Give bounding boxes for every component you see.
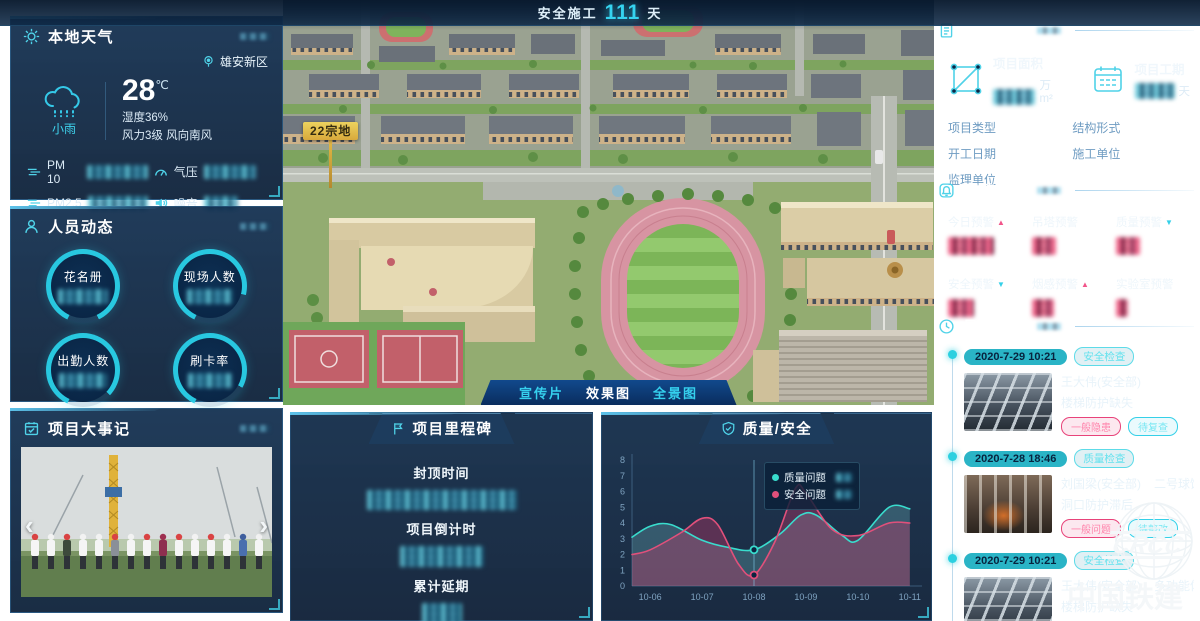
obscured-value — [993, 89, 1035, 105]
inspector-name: 刘国梁(安全部) — [1061, 475, 1141, 492]
tooltip-row-quality: 质量问题 — [772, 470, 852, 485]
parcel-marker[interactable]: 22宗地 — [303, 122, 358, 188]
obscured-value — [836, 473, 852, 482]
activity-photo-thumbnail[interactable] — [964, 373, 1052, 431]
weather-metrics: PM 10 气压 PM2.5 噪音 — [11, 150, 282, 212]
series-dot-safety — [772, 491, 779, 498]
header-days-count: 111 — [605, 2, 641, 23]
field-label: 开工日期 — [948, 145, 996, 162]
series-dot-quality — [772, 474, 779, 481]
field-project-type: 项目类型房建 — [948, 119, 1064, 136]
milestone-panel: 项目里程碑 封顶时间 项目倒计时 累计延期 — [290, 412, 593, 621]
area-measure-icon — [948, 61, 984, 97]
svg-text:10-11: 10-11 — [899, 592, 921, 602]
events-photo-carousel[interactable]: ‹ › — [21, 447, 272, 602]
weather-panel-title: 本地天气 — [48, 26, 114, 47]
warning-label: 质量预警 — [1116, 214, 1162, 230]
milestone-label: 项目倒计时 — [406, 519, 476, 538]
project-stats: 项目面积 万m² 项目工期 天 — [938, 41, 1194, 109]
gauge-label: 刷卡率 — [190, 352, 229, 369]
temperature-value: 28 — [122, 74, 155, 107]
obscured-value — [836, 490, 852, 499]
weather-main: 小雨 28℃ 湿度36% 风力3级 风向南风 — [11, 70, 282, 150]
view-button-promo[interactable]: 宣传片 — [519, 383, 564, 402]
trend-up-icon: ▲ — [1081, 280, 1089, 289]
issue-location: 二号球馆 — [1154, 475, 1194, 492]
header-bar: 安全施工 111 天 — [0, 0, 1200, 26]
stat-label: 项目面积 — [993, 53, 1064, 72]
calendar-event-icon — [23, 420, 40, 437]
svg-text:8: 8 — [620, 455, 625, 465]
quality-safety-chart: 01234567810-0610-0710-0810-0910-1010-11 … — [606, 448, 929, 619]
stat-duration: 项目工期 天 — [1090, 53, 1191, 105]
obscured-value — [204, 165, 256, 179]
metric-pressure: 气压 — [154, 158, 268, 186]
svg-text:4: 4 — [620, 518, 625, 528]
issue-description: 楼梯防护缺失 — [1061, 394, 1178, 411]
gauge-label: 现场人数 — [184, 268, 236, 285]
brand-name: 中国铁建 — [1067, 581, 1183, 614]
milestone-items: 封顶时间 项目倒计时 累计延期 — [291, 444, 592, 621]
panel-deco — [1037, 27, 1061, 34]
title-line — [291, 413, 369, 414]
warning-label: 实验室预警 — [1116, 276, 1174, 292]
title-line — [1075, 30, 1194, 31]
sun-icon — [23, 28, 40, 45]
obscured-value — [400, 546, 484, 567]
series-name: 质量问题 — [784, 470, 826, 485]
haze-icon — [27, 165, 41, 179]
field-value: 房建 — [1003, 119, 1027, 136]
dashboard-root: { "header": { "prefix": "安全施工", "days": … — [0, 0, 1200, 621]
warning-label: 安全预警 — [948, 276, 994, 292]
stat-area: 项目面积 万m² — [948, 53, 1064, 105]
obscured-value — [87, 165, 148, 179]
milestone-label: 累计延期 — [413, 576, 469, 595]
shield-check-icon — [721, 421, 736, 436]
field-value: 中铁十二局 — [1127, 145, 1187, 162]
location-pin-icon — [202, 55, 215, 68]
obscured-value — [1135, 83, 1175, 99]
svg-text:1: 1 — [620, 565, 625, 575]
crcc-logo: CRCC 中国铁建 — [1066, 501, 1198, 615]
parcel-marker-pole — [329, 140, 332, 188]
obscured-value — [367, 490, 517, 510]
panel-deco — [240, 223, 270, 230]
humidity-text: 湿度36% — [122, 110, 212, 128]
parcel-marker-label[interactable]: 22宗地 — [303, 122, 358, 140]
obscured-value — [187, 289, 233, 304]
obscured-value — [422, 603, 462, 621]
carousel-prev-arrow[interactable]: ‹ — [25, 512, 34, 538]
alarm-bell-icon — [938, 182, 955, 199]
svg-text:7: 7 — [620, 471, 625, 481]
svg-text:3: 3 — [620, 534, 625, 544]
divider — [105, 82, 106, 140]
status-tag: 待复查 — [1128, 417, 1178, 436]
weather-panel: 本地天气 雄安新区 小雨 28℃ — [10, 16, 283, 200]
view-switch-bar: 宣传片 效果图 全景图 — [481, 380, 737, 405]
stat-unit: 万m² — [1039, 77, 1063, 105]
gauge-swipe-rate: 刷卡率 — [173, 333, 247, 407]
events-panel: 项目大事记 ‹ › — [10, 408, 283, 613]
activity-photo-thumbnail[interactable] — [964, 475, 1052, 533]
warnings-grid: 今日预警▲ 吊塔预警 质量预警▼ 安全预警▼ 烟感预警▲ 实验室预警 — [938, 201, 1194, 322]
field-value: 2020-04-30 — [1003, 147, 1064, 161]
metric-label: 气压 — [174, 163, 198, 180]
svg-text:10-09: 10-09 — [794, 592, 817, 602]
obscured-value — [188, 373, 232, 388]
trend-up-icon: ▲ — [997, 218, 1005, 227]
field-structure: 结构形式框架结构 — [1072, 119, 1192, 136]
svg-text:6: 6 — [620, 487, 625, 497]
people-row — [31, 534, 263, 569]
field-label: 结构形式 — [1072, 119, 1120, 136]
activity-date-badge: 2020-7-29 10:21 — [964, 349, 1067, 365]
gauge-onsite: 现场人数 — [173, 249, 247, 323]
field-label: 施工单位 — [1072, 145, 1120, 162]
quality-safety-title: 质量/安全 — [743, 418, 813, 439]
title-line — [515, 413, 593, 414]
wind-text: 风力3级 风向南风 — [122, 128, 212, 146]
location-row: 雄安新区 — [11, 53, 282, 70]
gauge-label: 花名册 — [64, 268, 103, 285]
field-builder: 施工单位中铁十二局 — [1072, 145, 1192, 162]
warning-label: 今日预警 — [948, 214, 994, 230]
title-line — [602, 413, 699, 414]
weather-condition: 小雨 — [52, 120, 76, 137]
obscured-value — [1032, 299, 1054, 317]
sports-courts — [283, 322, 465, 405]
events-panel-title: 项目大事记 — [48, 418, 131, 439]
activity-category-badge: 质量检查 — [1074, 449, 1134, 468]
aerial-render-view: 22宗地 宣传片 效果图 全景图 — [283, 0, 934, 405]
milestone-label: 封顶时间 — [413, 463, 469, 482]
gauge-attendance: 出勤人数 — [46, 333, 120, 407]
svg-text:CRCC: CRCC — [1110, 532, 1186, 559]
obscured-value — [1116, 299, 1128, 317]
activity-photo-thumbnail[interactable] — [964, 577, 1052, 621]
gauge-roster: 花名册 — [46, 249, 120, 323]
timeline-dot — [948, 350, 957, 359]
obscured-value — [1032, 237, 1056, 255]
project-fields: 项目类型房建 结构形式框架结构 开工日期2020-04-30 施工单位中铁十二局… — [938, 109, 1194, 188]
gauge-label: 出勤人数 — [57, 352, 109, 369]
chart-tooltip: 质量问题 安全问题 — [764, 462, 860, 510]
stat-label: 项目工期 — [1135, 59, 1191, 78]
field-value: 框架结构 — [1127, 119, 1175, 136]
project-info-panel: 项目信息 项目面积 万m² — [938, 20, 1194, 178]
svg-text:10-08: 10-08 — [742, 592, 765, 602]
obscured-value — [948, 299, 974, 317]
series-name: 安全问题 — [784, 487, 826, 502]
rain-cloud-icon — [42, 84, 86, 118]
inspector-name: 王大伟(安全部) — [1061, 373, 1141, 390]
panel-deco — [240, 425, 270, 432]
personnel-panel: 人员动态 花名册 现场人数 出勤人数 刷卡率 — [10, 206, 283, 402]
timeline-dot — [948, 452, 957, 461]
warning-crane: 吊塔预警 — [1032, 214, 1110, 260]
svg-text:10-10: 10-10 — [846, 592, 869, 602]
carousel-next-arrow[interactable]: › — [259, 512, 268, 538]
temperature-unit: ℃ — [155, 78, 168, 92]
header-title-prefix: 安全施工 — [538, 3, 598, 22]
activity-date-badge: 2020-7-29 10:21 — [964, 553, 1067, 569]
svg-text:0: 0 — [620, 581, 625, 591]
svg-text:5: 5 — [620, 502, 625, 512]
obscured-value — [58, 289, 108, 304]
flag-icon — [391, 421, 406, 436]
activity-category-badge: 安全检查 — [1074, 347, 1134, 366]
milestone-panel-title: 项目里程碑 — [413, 418, 493, 439]
calendar-icon — [1090, 61, 1126, 97]
metric-pm10: PM 10 — [27, 158, 148, 186]
warning-quality: 质量预警▼ — [1116, 214, 1194, 260]
title-line — [834, 413, 931, 414]
view-button-panorama[interactable]: 全景图 — [653, 383, 698, 402]
field-label: 项目类型 — [948, 119, 996, 136]
svg-text:2: 2 — [620, 550, 625, 560]
svg-text:10-07: 10-07 — [691, 592, 714, 602]
obscured-value — [1116, 237, 1140, 255]
clock-icon — [938, 318, 955, 335]
view-button-render[interactable]: 效果图 — [586, 383, 631, 402]
milestone-group-photo — [21, 447, 272, 597]
quality-safety-panel: 质量/安全 01234567810-0610-0710-0810-0910-10… — [601, 412, 932, 621]
field-start-date: 开工日期2020-04-30 — [948, 145, 1064, 162]
gauge-icon — [154, 165, 168, 179]
header-title-suffix: 天 — [647, 3, 662, 22]
personnel-panel-title: 人员动态 — [48, 216, 114, 237]
warning-label: 烟感预警 — [1032, 276, 1078, 292]
warning-label: 吊塔预警 — [1032, 214, 1078, 230]
aerial-render-art — [283, 0, 934, 405]
crcc-wordmark: CRCC — [1102, 531, 1191, 559]
panel-deco — [1037, 187, 1061, 194]
obscured-value — [948, 237, 994, 255]
personnel-gauges: 花名册 现场人数 出勤人数 刷卡率 — [11, 243, 282, 407]
title-line — [1075, 326, 1194, 327]
trend-down-icon: ▼ — [1165, 218, 1173, 227]
title-line — [1075, 190, 1194, 191]
activity-item[interactable]: 2020-7-29 10:21 安全检查 王大伟(安全部) 楼梯防护缺失 一般隐… — [964, 347, 1194, 436]
latest-activity-title: 最新动态 — [963, 316, 1029, 337]
metric-label: PM 10 — [47, 158, 81, 186]
trend-down-icon: ▼ — [997, 280, 1005, 289]
timeline-dot — [948, 554, 957, 563]
running-track — [601, 198, 765, 394]
activity-date-badge: 2020-7-28 18:46 — [964, 451, 1067, 467]
obscured-value — [59, 373, 107, 388]
tooltip-row-safety: 安全问题 — [772, 487, 852, 502]
stat-unit: 天 — [1179, 83, 1191, 99]
person-icon — [23, 218, 40, 235]
warnings-title: 预警信息 — [963, 180, 1029, 201]
warnings-panel: 预警信息 今日预警▲ 吊塔预警 质量预警▼ 安全预警▼ 烟感预警▲ 实验室预警 — [938, 180, 1194, 312]
hazard-level-tag: 一般隐患 — [1061, 417, 1121, 436]
panel-deco — [1037, 323, 1061, 330]
svg-text:10-06: 10-06 — [639, 592, 662, 602]
warning-today: 今日预警▲ — [948, 214, 1026, 260]
panel-deco — [240, 33, 270, 40]
location-label: 雄安新区 — [220, 53, 268, 70]
